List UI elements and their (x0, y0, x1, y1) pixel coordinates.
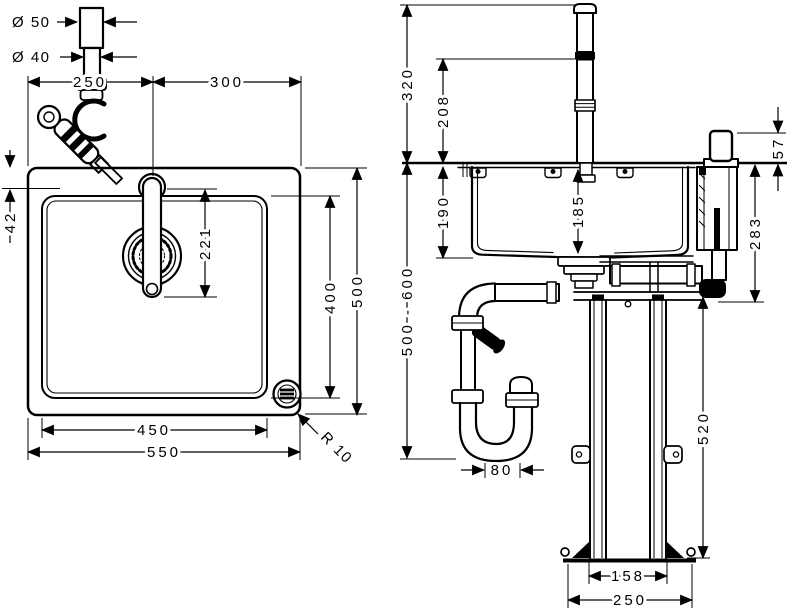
dim-label-corner-radius: R 10 (317, 429, 356, 468)
dim-label-base-width: 250 (613, 592, 647, 609)
dim-label-total-width: 550 (147, 444, 181, 461)
sink-plan-outline (28, 168, 300, 415)
dim-label-frame-width: 158 (611, 568, 645, 585)
dim-label-bowl-width: 450 (137, 422, 171, 439)
faucet-column (574, 4, 596, 182)
dispenser-elbow (699, 279, 726, 298)
dim-label-handle-height: 57 (770, 137, 787, 160)
dim-label-frame-height: 520 (695, 411, 712, 445)
spout-pipe-upper (80, 8, 103, 48)
dim-label-total-depth: 500 (349, 274, 366, 308)
dim-label-dia-upper: Ø 50 (12, 14, 51, 31)
trap-nut-lower (452, 390, 483, 403)
trap-dome-cap (510, 377, 532, 393)
u-bend (460, 403, 532, 461)
dim-label-edge-to-tap: 42 (2, 211, 19, 234)
plan-dimensions: Ø 50 Ø 40 250 300 42 221 400 500 450 550… (2, 14, 367, 467)
sink-outer-rim (28, 168, 300, 415)
spout-arm (143, 178, 161, 297)
elevation-view: 320 208 190 185 57 283 500 - 600 80 520 … (399, 4, 787, 609)
dim-label-outlet-height: 208 (435, 94, 452, 128)
sink-installation-drawing: Ø 50 Ø 40 250 300 42 221 400 500 450 550… (0, 0, 790, 611)
dim-label-unit-depth: 283 (747, 216, 764, 250)
frame-foot-left (572, 541, 590, 558)
remote-knob (274, 381, 301, 408)
dim-label-tap-to-spout: 221 (197, 226, 214, 260)
drain-trap (452, 264, 702, 461)
dim-label-dia-lower: Ø 40 (12, 49, 51, 66)
dim-label-spout-height: 320 (399, 67, 416, 101)
drawing-canvas: Ø 50 Ø 40 250 300 42 221 400 500 450 550… (0, 0, 790, 611)
dim-label-bowl-outer-depth: 190 (435, 195, 452, 229)
dim-label-left-to-tap: 250 (73, 74, 107, 91)
dim-label-bowl-inner-depth: 185 (570, 194, 587, 228)
mounting-clips (470, 168, 633, 178)
dim-label-tap-to-right: 300 (210, 74, 244, 91)
radius-leader (298, 414, 318, 434)
spout-cap (574, 4, 596, 13)
floor-frame (561, 292, 703, 561)
dim-label-trap-offset: 80 (491, 462, 514, 479)
dispenser-unit (697, 131, 738, 298)
dim-label-bowl-depth: 400 (322, 280, 339, 314)
faucet-top-view (38, 8, 122, 184)
spout-joint (575, 52, 595, 60)
faucet-shank (580, 163, 592, 175)
spout-outlet (147, 284, 158, 295)
plan-view: Ø 50 Ø 40 250 300 42 221 400 500 450 550… (2, 8, 367, 467)
handle-knob (38, 106, 60, 128)
frame-foot-right (666, 541, 684, 558)
dim-label-drain-range: 500 - 600 (399, 266, 416, 356)
dispenser-handle (710, 131, 732, 161)
spout-plan (139, 174, 165, 297)
